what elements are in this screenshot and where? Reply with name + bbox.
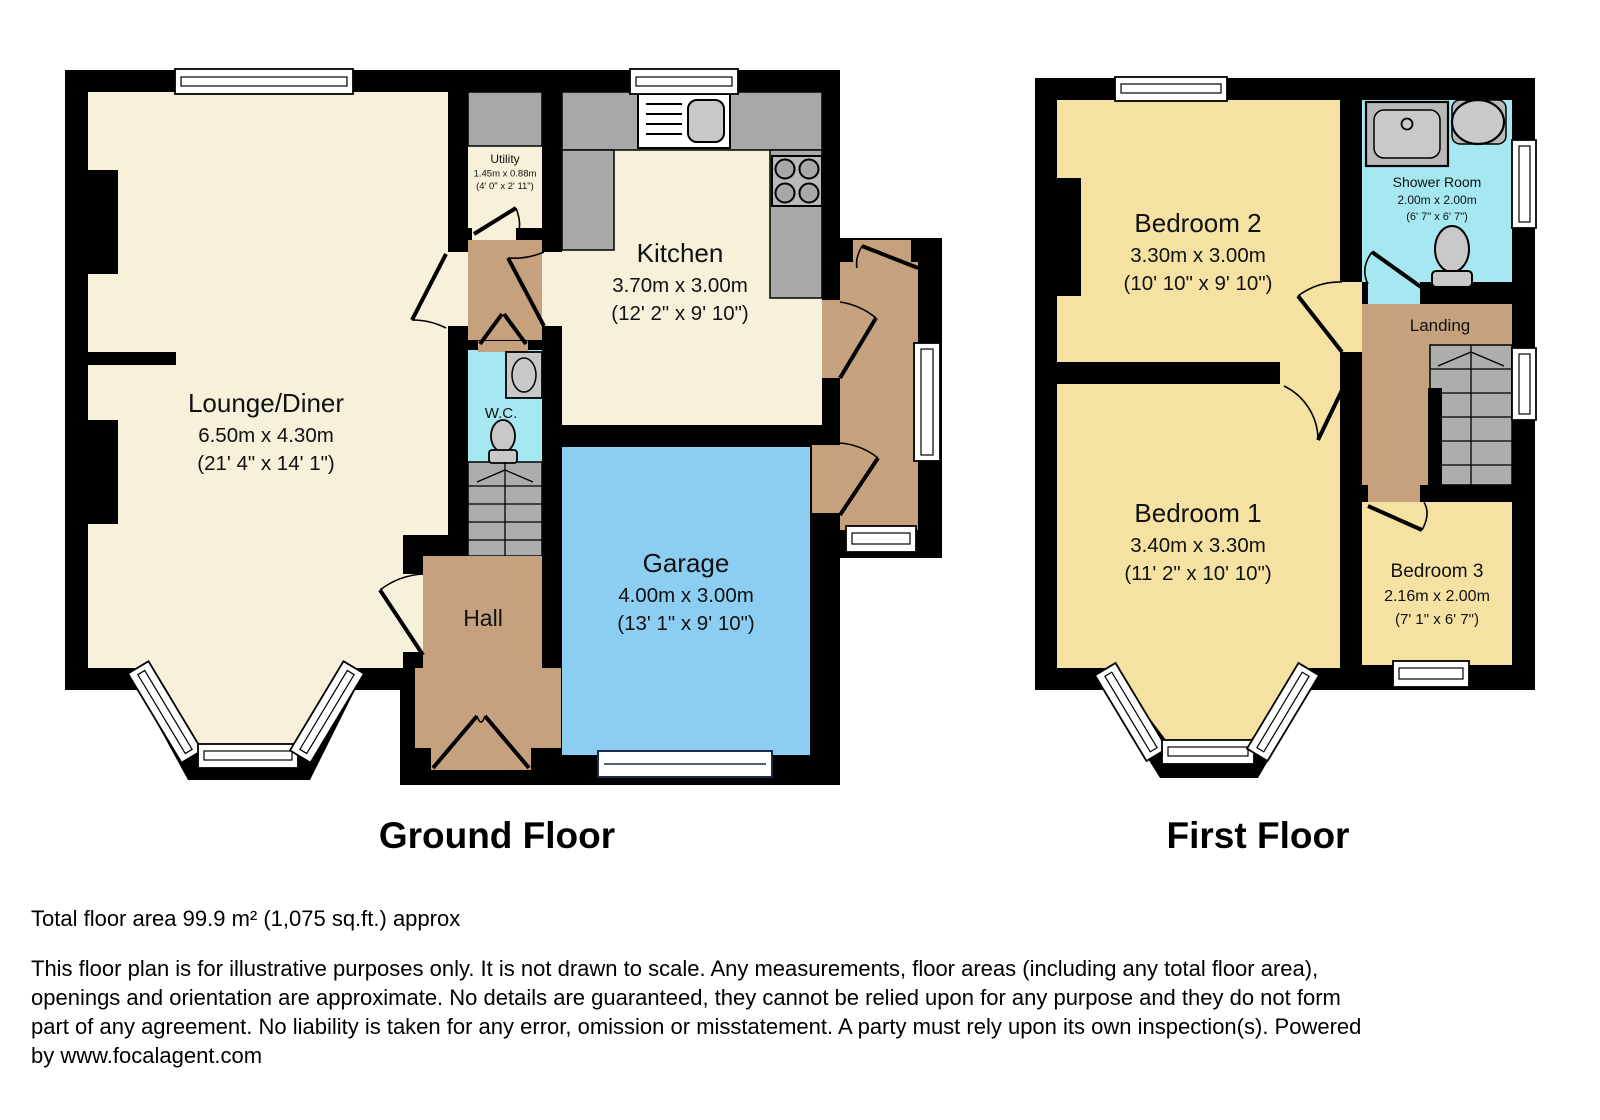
- utility-metric: 1.45m x 0.88m: [474, 169, 537, 180]
- utility-counter: [468, 92, 542, 146]
- passage-bottom-window: [846, 526, 916, 552]
- wc-label: W.C.: [485, 405, 518, 422]
- shower-metric: 2.00m x 2.00m: [1397, 193, 1476, 207]
- bedroom2-metric: 3.30m x 3.00m: [1130, 244, 1266, 267]
- garage-metric: 4.00m x 3.00m: [618, 584, 754, 607]
- bedroom3-label: Bedroom 3: [1391, 561, 1484, 582]
- bedroom3-window: [1393, 661, 1469, 687]
- utility-imperial: (4' 0" x 2' 11"): [476, 181, 534, 192]
- disclaimer-line-2: openings and orientation are approximate…: [31, 983, 1576, 1012]
- chimney-breast-first: [1055, 178, 1081, 296]
- bedroom1-metric: 3.40m x 3.30m: [1130, 534, 1266, 557]
- bedroom2-imperial: (10' 10" x 9' 10"): [1124, 272, 1273, 295]
- hob-fixture: [772, 156, 822, 206]
- stair-landing-wall: [1428, 388, 1442, 485]
- garage-label: Garage: [643, 548, 730, 578]
- disclaimer-line-3: part of any agreement. No liability is t…: [31, 1012, 1576, 1041]
- ground-floor-plan: Lounge/Diner 6.50m x 4.30m (21' 4" x 14'…: [65, 69, 942, 856]
- lounge-top-window: [175, 69, 353, 94]
- lounge-label: Lounge/Diner: [188, 388, 344, 418]
- ground-floor-title: Ground Floor: [379, 815, 615, 856]
- room-lounge-diner: [88, 92, 448, 752]
- bedroom3-imperial: (7' 1" x 6' 7"): [1395, 611, 1479, 628]
- shower-label: Shower Room: [1393, 174, 1482, 190]
- kitchen-sink-fixture: [638, 94, 730, 148]
- landing-label: Landing: [1410, 316, 1471, 335]
- shower-basin-fixture: [1452, 100, 1506, 144]
- bedroom3-metric: 2.16m x 2.00m: [1384, 588, 1490, 605]
- floorplan-drawing: Lounge/Diner 6.50m x 4.30m (21' 4" x 14'…: [0, 0, 1600, 900]
- room-bedroom3: [1362, 502, 1512, 665]
- first-floor-title: First Floor: [1167, 815, 1350, 856]
- bedroom1-imperial: (11' 2" x 10' 10"): [1124, 562, 1271, 585]
- passage-right-window: [914, 343, 940, 461]
- first-floor-plan: Bedroom 2 3.30m x 3.00m (10' 10" x 9' 10…: [1035, 77, 1536, 856]
- garage-door: [598, 751, 772, 777]
- shower-window: [1512, 140, 1536, 228]
- wc-toilet-fixture: [489, 420, 517, 463]
- disclaimer-line-1: This floor plan is for illustrative purp…: [31, 954, 1576, 983]
- lounge-metric: 6.50m x 4.30m: [198, 424, 334, 447]
- kitchen-window: [630, 69, 738, 94]
- utility-label: Utility: [490, 152, 519, 166]
- wc-basin-fixture: [506, 352, 542, 398]
- shower-tray-fixture: [1366, 102, 1448, 166]
- disclaimer-line-4: by www.focalagent.com: [31, 1041, 1576, 1070]
- floorplan-page: Lounge/Diner 6.50m x 4.30m (21' 4" x 14'…: [0, 0, 1600, 1120]
- garage-imperial: (13' 1" x 9' 10"): [617, 612, 754, 635]
- stairwell-window: [1512, 348, 1536, 420]
- lounge-imperial: (21' 4" x 14' 1"): [197, 452, 334, 475]
- kitchen-label: Kitchen: [637, 238, 724, 268]
- total-floor-area: Total floor area 99.9 m² (1,075 sq.ft.) …: [31, 906, 1576, 932]
- bedroom2-window: [1115, 77, 1227, 101]
- hall-label: Hall: [463, 605, 503, 631]
- room-vestibule: [468, 240, 542, 340]
- shower-toilet-fixture: [1432, 226, 1472, 287]
- bedroom1-label: Bedroom 1: [1134, 498, 1261, 528]
- bedroom2-label: Bedroom 2: [1134, 208, 1261, 238]
- footer: Total floor area 99.9 m² (1,075 sq.ft.) …: [31, 906, 1576, 1070]
- shower-imperial: (6' 7" x 6' 7"): [1406, 211, 1468, 223]
- room-side-passage: [840, 262, 918, 530]
- kitchen-imperial: (12' 2" x 9' 10"): [611, 302, 748, 325]
- kitchen-metric: 3.70m x 3.00m: [612, 274, 748, 297]
